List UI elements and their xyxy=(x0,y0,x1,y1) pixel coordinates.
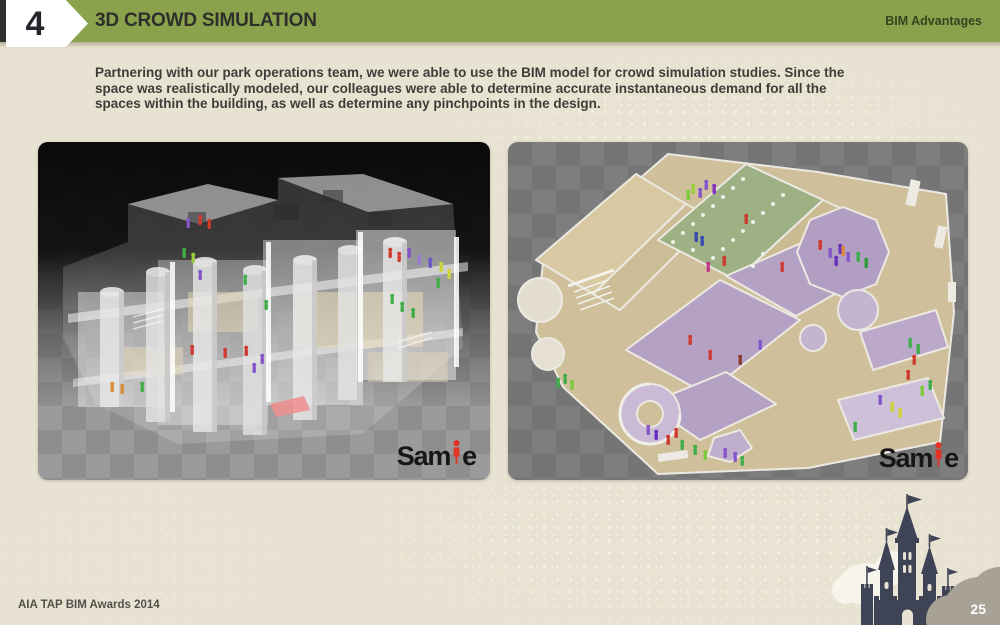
watermark-text-post: e xyxy=(944,445,958,472)
section-label: BIM Advantages xyxy=(885,0,982,42)
watermark-text-post: e xyxy=(462,443,476,470)
watermark-text-pre: Sam xyxy=(397,443,450,470)
paragraph-line-1: Partnering with our park operations team… xyxy=(95,65,844,81)
slide-number: 4 xyxy=(26,7,45,41)
person-icon xyxy=(933,442,944,472)
person-icon xyxy=(451,440,462,470)
slide-title: 3D CROWD SIMULATION xyxy=(95,0,317,42)
crowd-simulation-perspective-image: Same xyxy=(38,142,490,480)
castle-illustration: 25 xyxy=(830,490,1000,625)
body-paragraph: Partnering with our park operations team… xyxy=(95,65,844,112)
paragraph-line-2: space was realistically modeled, our col… xyxy=(95,81,844,97)
crowd-simulation-plan-image: Same xyxy=(508,142,968,480)
building-model-graphic xyxy=(38,142,490,480)
paragraph-line-3: spaces within the building, as well as d… xyxy=(95,96,844,112)
header-shadow xyxy=(0,42,1000,48)
page-number: 25 xyxy=(970,601,986,617)
floor-plan-graphic xyxy=(508,142,968,480)
plan-rooms xyxy=(518,154,954,474)
watermark-text-pre: Sam xyxy=(879,445,932,472)
samie-watermark: Same xyxy=(879,442,958,472)
slide-page: 4 3D CROWD SIMULATION BIM Advantages Par… xyxy=(0,0,1000,625)
samie-watermark: Same xyxy=(397,440,476,470)
footer-credit: AIA TAP BIM Awards 2014 xyxy=(18,599,160,611)
